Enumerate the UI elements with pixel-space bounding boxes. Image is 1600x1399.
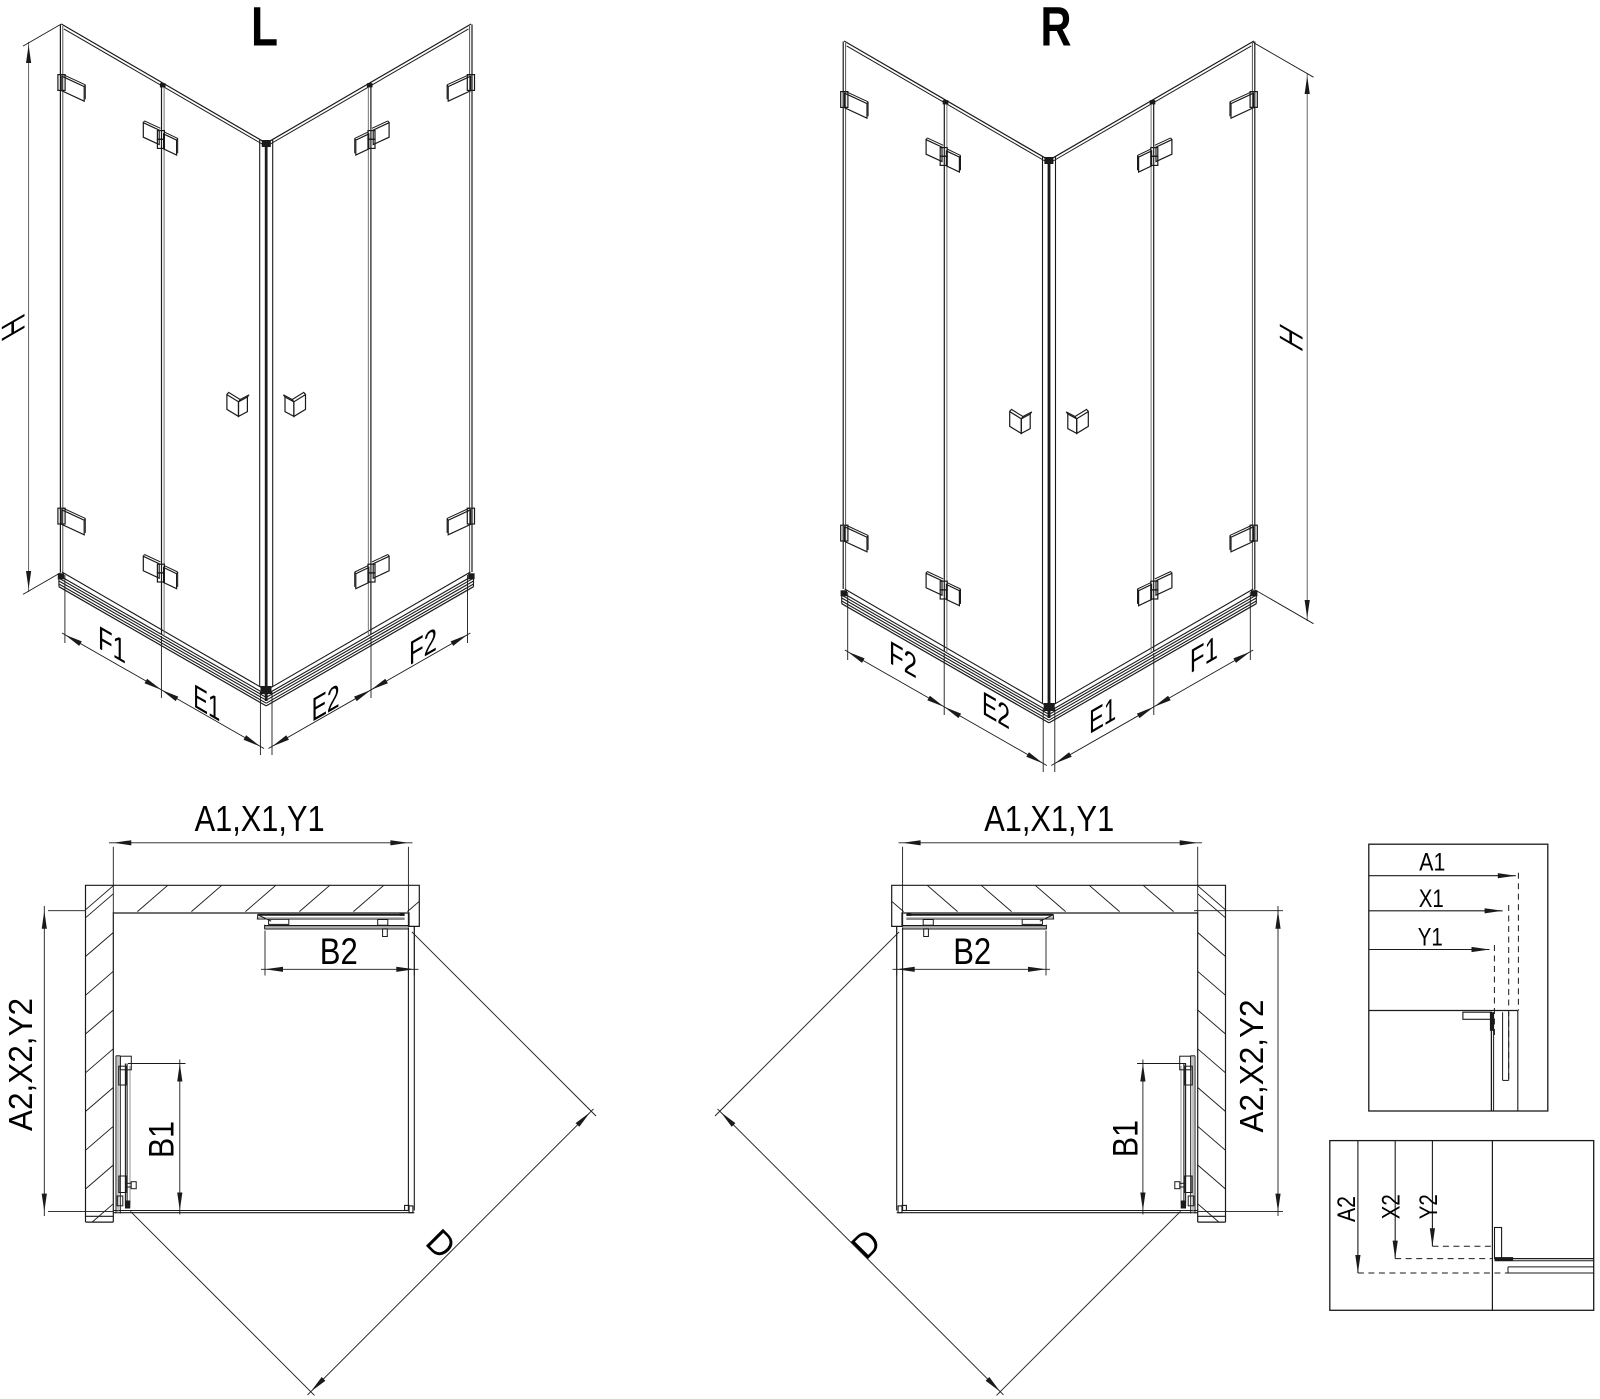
- svg-text:B1: B1: [1106, 1120, 1145, 1157]
- svg-text:X1: X1: [1419, 885, 1444, 913]
- svg-text:R: R: [1041, 0, 1072, 57]
- svg-text:A2,X2,Y2: A2,X2,Y2: [1233, 1000, 1270, 1133]
- svg-text:A1,X1,Y1: A1,X1,Y1: [984, 798, 1114, 839]
- svg-text:B1: B1: [142, 1121, 181, 1158]
- svg-text:Y2: Y2: [1415, 1194, 1443, 1219]
- svg-text:B2: B2: [320, 931, 358, 972]
- svg-text:L: L: [251, 0, 278, 57]
- svg-text:B2: B2: [953, 931, 991, 972]
- svg-text:A2,X2,Y2: A2,X2,Y2: [2, 998, 39, 1131]
- svg-text:X2: X2: [1378, 1194, 1406, 1219]
- svg-text:A1,X1,Y1: A1,X1,Y1: [195, 798, 325, 839]
- svg-text:A2: A2: [1333, 1196, 1361, 1222]
- svg-text:A1: A1: [1419, 849, 1445, 877]
- svg-text:Y1: Y1: [1418, 923, 1443, 951]
